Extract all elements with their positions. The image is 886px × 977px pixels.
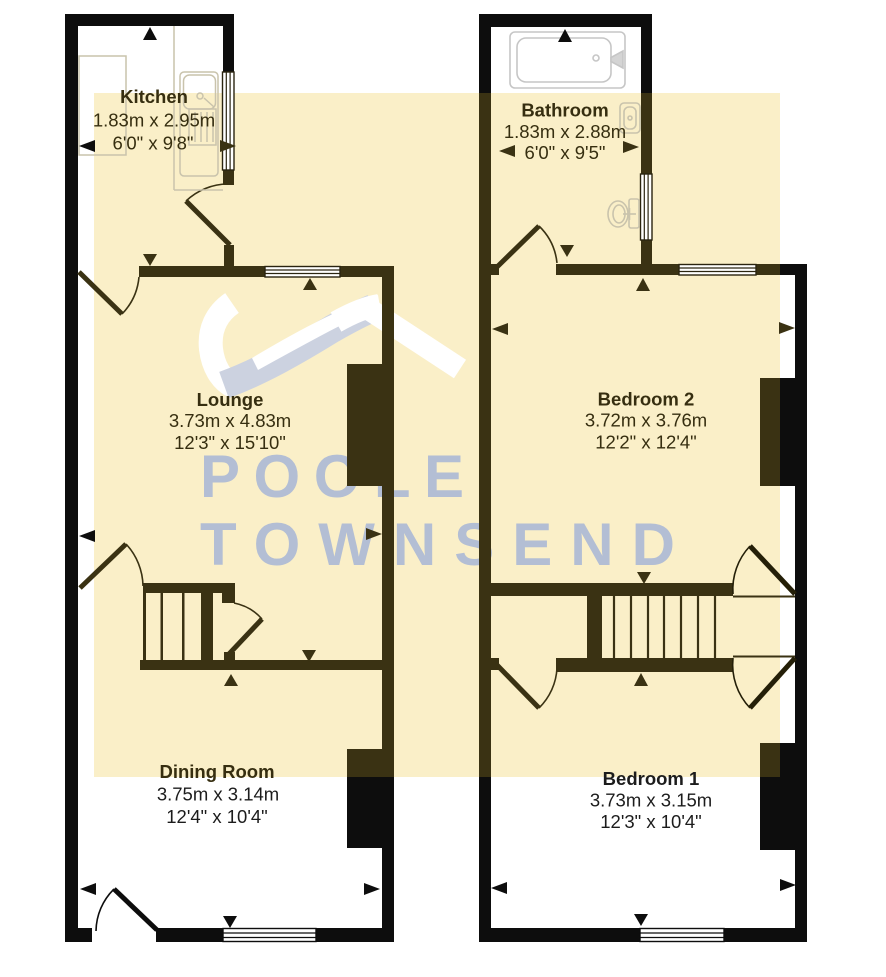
svg-text:Lounge: Lounge [197, 389, 264, 410]
svg-text:12'3" x 15'10": 12'3" x 15'10" [174, 432, 286, 453]
svg-text:3.72m x 3.76m: 3.72m x 3.76m [585, 410, 707, 431]
svg-text:3.73m x 4.83m: 3.73m x 4.83m [169, 410, 291, 431]
svg-text:1.83m x 2.88m: 1.83m x 2.88m [504, 121, 626, 142]
svg-text:Kitchen: Kitchen [120, 86, 188, 107]
svg-text:Dining Room: Dining Room [159, 761, 274, 782]
svg-text:3.75m x 3.14m: 3.75m x 3.14m [157, 784, 279, 805]
svg-text:TOWNSEND: TOWNSEND [200, 511, 693, 578]
svg-text:12'3" x 10'4": 12'3" x 10'4" [600, 811, 701, 832]
svg-text:6'0" x 9'8": 6'0" x 9'8" [113, 133, 194, 154]
svg-text:1.83m x 2.95m: 1.83m x 2.95m [93, 110, 215, 131]
svg-text:12'4" x 10'4": 12'4" x 10'4" [166, 806, 267, 827]
svg-text:Bedroom 2: Bedroom 2 [598, 389, 695, 410]
svg-text:POOLE: POOLE [200, 443, 478, 510]
svg-text:Bathroom: Bathroom [521, 100, 608, 121]
svg-text:Bedroom 1: Bedroom 1 [603, 768, 700, 789]
svg-text:3.73m x 3.15m: 3.73m x 3.15m [590, 790, 712, 811]
svg-text:6'0" x 9'5": 6'0" x 9'5" [525, 142, 606, 163]
svg-text:12'2" x 12'4": 12'2" x 12'4" [595, 432, 696, 453]
